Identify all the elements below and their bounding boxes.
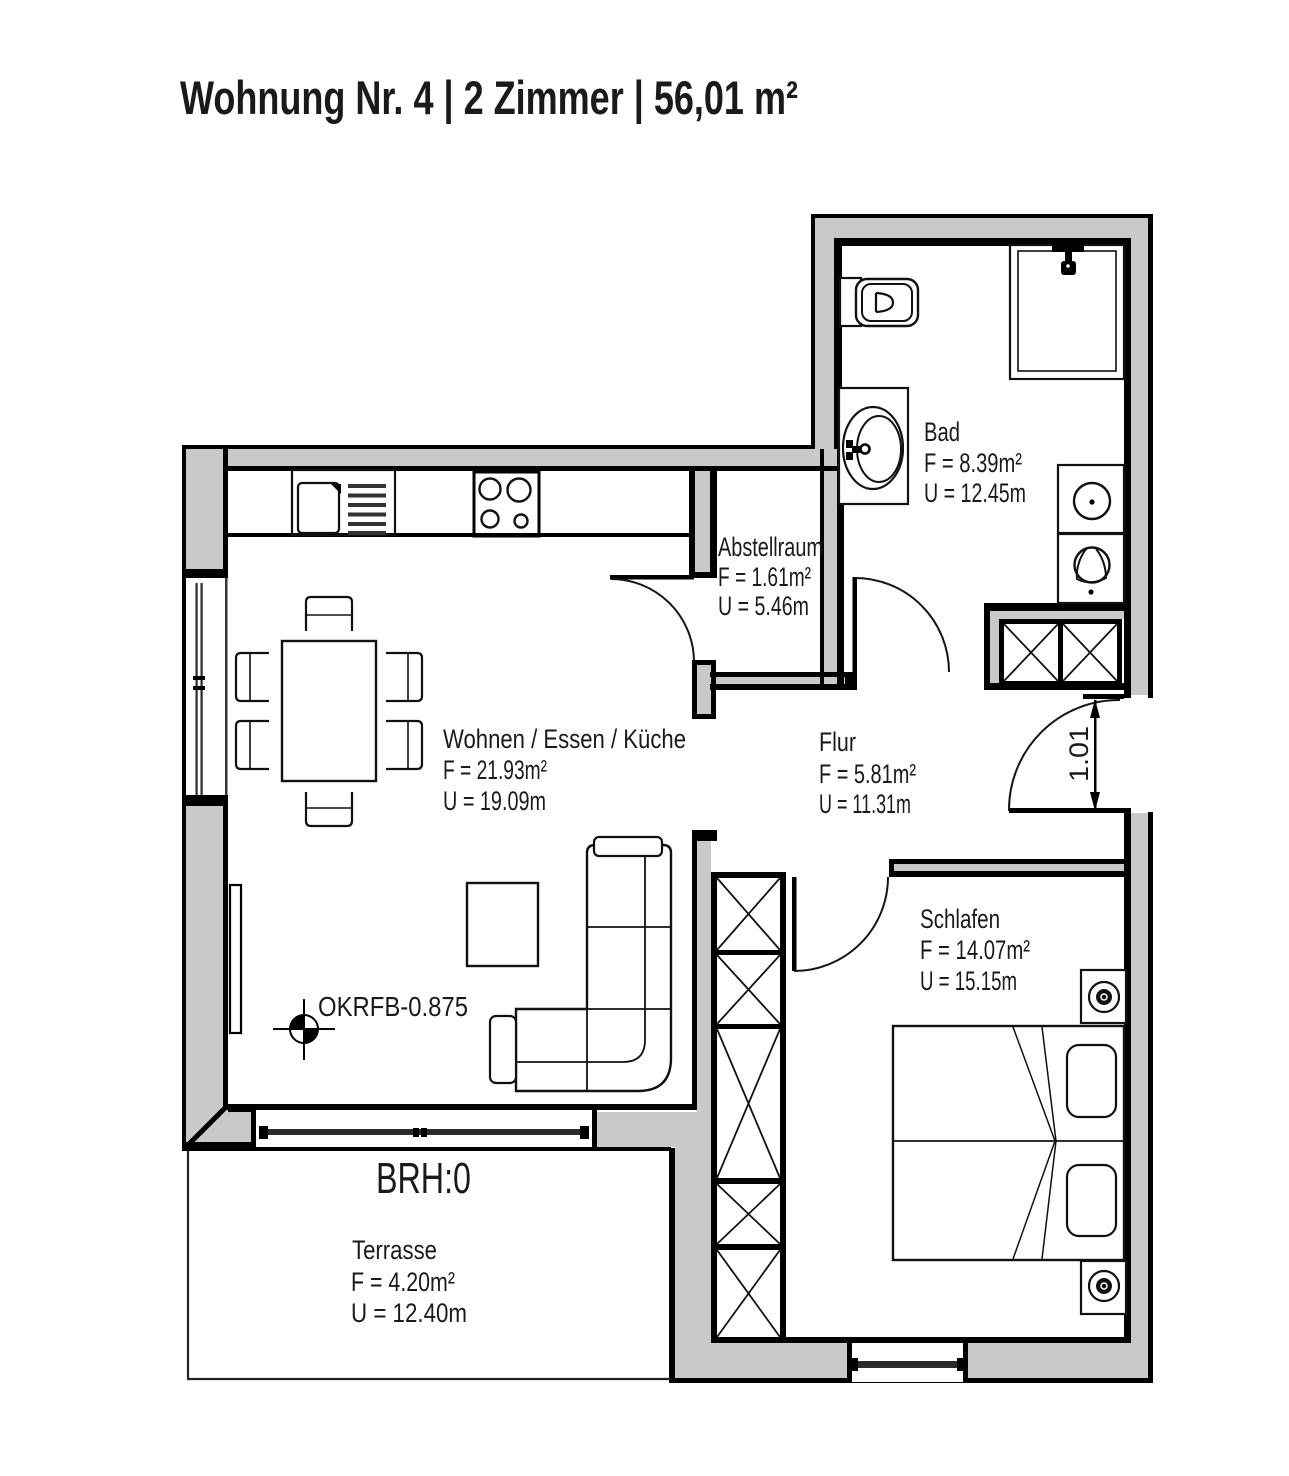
svg-text:1.01: 1.01 <box>1064 726 1094 782</box>
svg-text:Terrasse: Terrasse <box>352 1235 437 1265</box>
svg-text:U = 12.45m: U = 12.45m <box>924 478 1026 508</box>
svg-text:F = 8.39m²: F = 8.39m² <box>924 448 1022 478</box>
svg-text:Wohnen / Essen / Küche: Wohnen / Essen / Küche <box>443 724 686 754</box>
svg-text:Schlafen: Schlafen <box>920 904 1000 934</box>
svg-text:F = 1.61m²: F = 1.61m² <box>718 562 811 592</box>
svg-text:F = 4.20m²: F = 4.20m² <box>351 1267 455 1297</box>
svg-text:F = 5.81m²: F = 5.81m² <box>819 759 916 789</box>
svg-text:Bad: Bad <box>924 417 960 447</box>
svg-text:F = 21.93m²: F = 21.93m² <box>443 755 547 785</box>
svg-text:U = 11.31m: U = 11.31m <box>819 789 911 819</box>
svg-text:Flur: Flur <box>819 727 856 757</box>
svg-text:U = 19.09m: U = 19.09m <box>443 786 546 816</box>
svg-text:BRH:0: BRH:0 <box>376 1154 471 1203</box>
svg-text:U = 15.15m: U = 15.15m <box>920 966 1017 996</box>
svg-text:Abstellraum: Abstellraum <box>718 532 823 562</box>
svg-text:F = 14.07m²: F = 14.07m² <box>920 935 1030 965</box>
svg-text:U = 5.46m: U = 5.46m <box>718 591 809 621</box>
svg-text:OKRFB-0.875: OKRFB-0.875 <box>318 991 468 1022</box>
svg-text:U = 12.40m: U = 12.40m <box>351 1298 467 1328</box>
svg-text:Wohnung Nr. 4 | 2 Zimmer | 56,: Wohnung Nr. 4 | 2 Zimmer | 56,01 m² <box>180 71 798 124</box>
